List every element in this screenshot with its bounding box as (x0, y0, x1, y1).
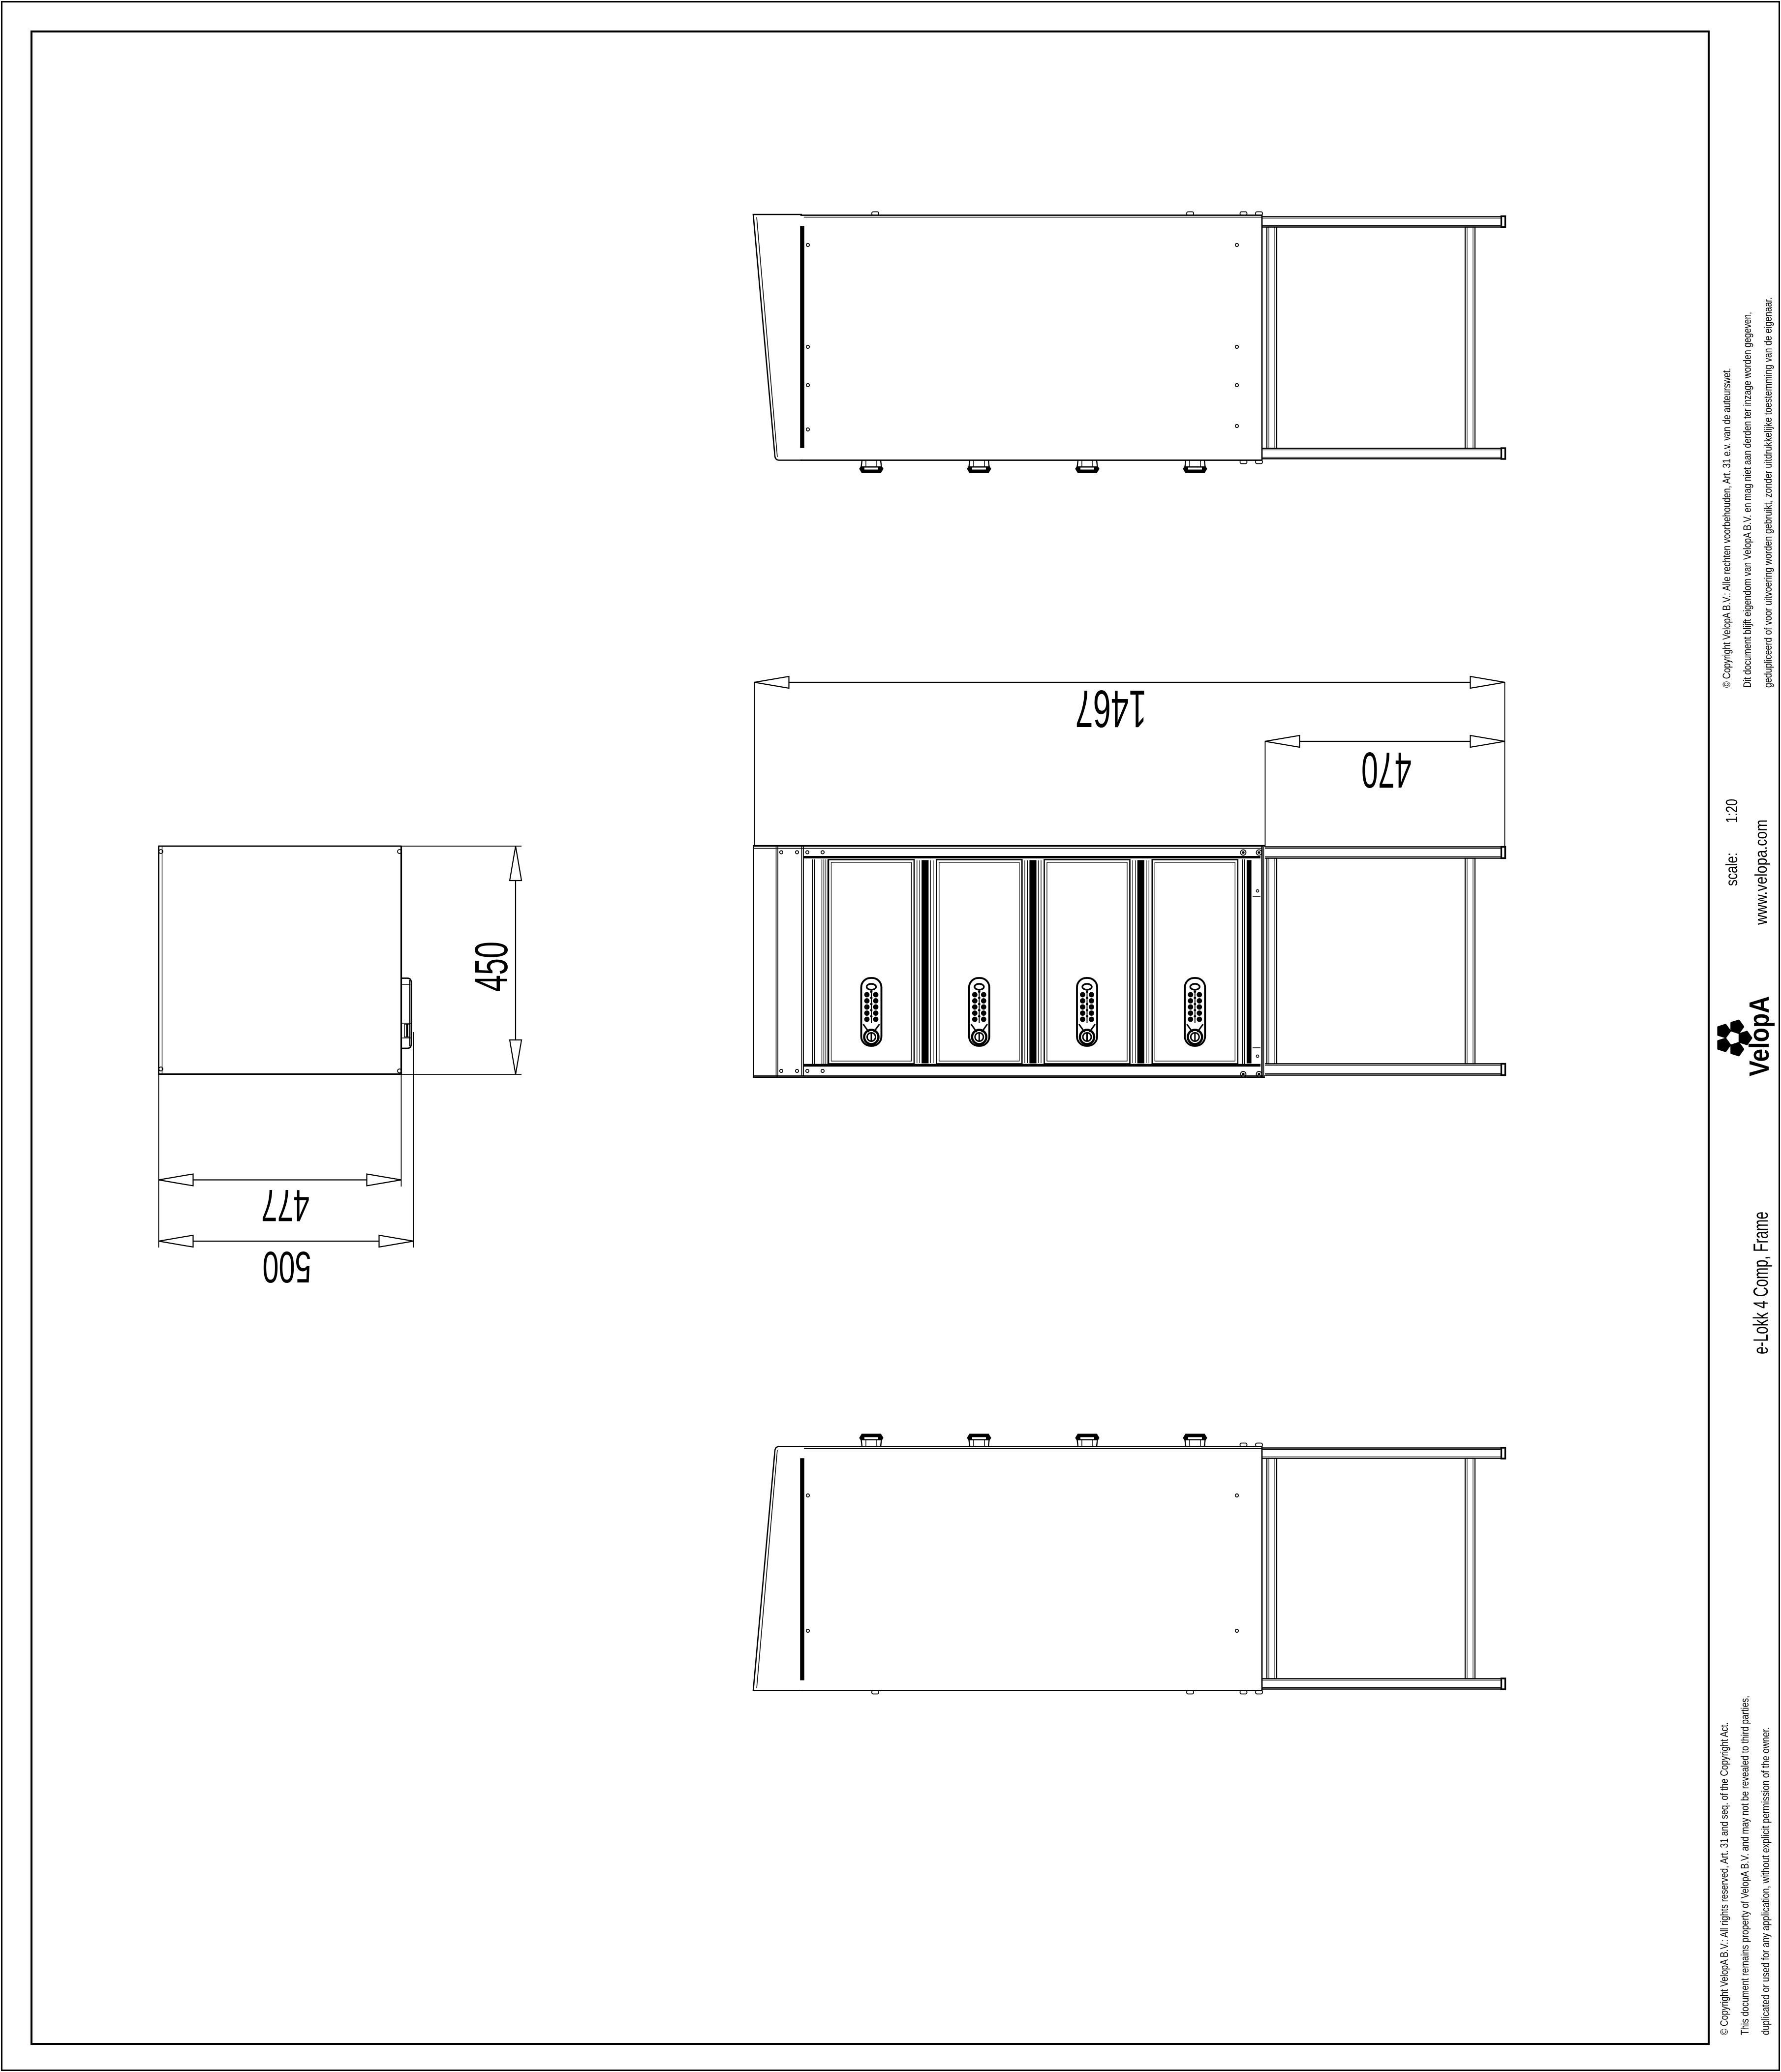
svg-text:e-Lokk 4 Comp, Frame: e-Lokk 4 Comp, Frame (1749, 1212, 1772, 1354)
svg-text:www.velopa.com: www.velopa.com (1752, 820, 1771, 925)
svg-text:duplicated or used for any app: duplicated or used for any application, … (1759, 1727, 1772, 2035)
svg-text:© Copyright VelopA B.V.: All r: © Copyright VelopA B.V.: All rights rese… (1718, 1722, 1730, 2035)
svg-text:450: 450 (465, 942, 518, 992)
svg-text:1467: 1467 (1075, 679, 1147, 739)
svg-text:470: 470 (1361, 742, 1412, 798)
svg-text:500: 500 (263, 1242, 311, 1291)
svg-text:1:20: 1:20 (1722, 799, 1741, 823)
svg-text:Dit document blijft eigendom v: Dit document blijft eigendom van VelopA … (1741, 312, 1753, 688)
svg-text:VelopA: VelopA (1744, 996, 1775, 1076)
svg-text:scale:: scale: (1722, 853, 1741, 886)
svg-text:© Copyright VelopA B.V.: Alle: © Copyright VelopA B.V.: Alle rechten vo… (1720, 368, 1733, 688)
svg-text:477: 477 (261, 1180, 309, 1230)
svg-text:This document remains property: This document remains property of VelopA… (1739, 1696, 1751, 2035)
svg-text:gedupliceerd of voor uitvoerin: gedupliceerd of voor uitvoering worden g… (1762, 297, 1774, 688)
